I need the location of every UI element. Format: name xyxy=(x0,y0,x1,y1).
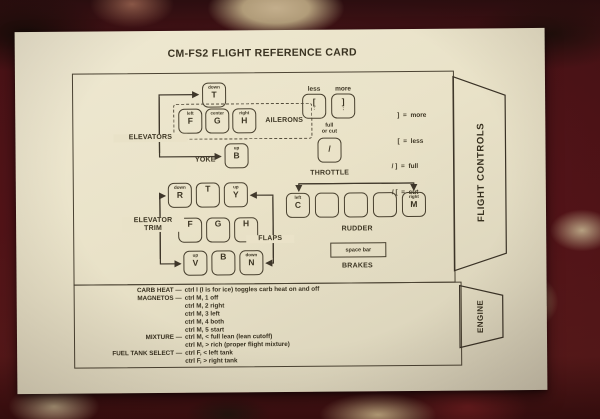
key-H-aileron-right: right H xyxy=(232,108,256,133)
engine-row-text: ctrl F, > right tank xyxy=(185,358,237,366)
key-Y-flaps-up: up Y xyxy=(224,182,248,207)
photo-of-reference-card: { "title": "CM-FS2 FLIGHT REFERENCE CARD… xyxy=(0,0,600,419)
engine-instructions: CARB HEAT — ctrl I (I is for ice) toggle… xyxy=(74,285,461,367)
engine-row-text: ctrl M, > rich (proper flight mixture) xyxy=(185,341,290,350)
key-M-rudder-right: right M xyxy=(402,192,426,217)
key-letter: V xyxy=(193,259,199,268)
key-blank-rudder xyxy=(344,192,368,217)
key-letter: C xyxy=(295,201,301,210)
elevators-label: ELEVATORS xyxy=(113,134,187,142)
key-blank-rudder xyxy=(315,193,339,218)
key-letter: T xyxy=(205,185,210,194)
key-letter: / xyxy=(328,145,330,154)
key-T-trim: T xyxy=(196,182,220,207)
key-right-bracket-throttle-more: ] ; xyxy=(331,93,355,118)
key-N-flaps-down: down N xyxy=(239,250,263,275)
space-bar-key: space bar xyxy=(330,242,386,257)
key-letter: F xyxy=(188,117,193,126)
flight-controls-tab-outline xyxy=(453,76,507,270)
key-G-middle-row: G xyxy=(206,217,230,242)
key-V-trim-up: up V xyxy=(183,251,207,276)
key-letter: B xyxy=(220,252,226,261)
key-B-elevator-up: up B xyxy=(224,143,248,168)
rudder-arrow-right xyxy=(299,183,414,191)
engine-tab-outline xyxy=(460,285,503,347)
elevator-trim-label: ELEVATOR TRIM xyxy=(122,217,184,232)
key-letter: B xyxy=(233,151,239,160)
key-letter: G xyxy=(215,219,222,228)
key-letter: H xyxy=(243,219,249,228)
key-letter: M xyxy=(410,200,417,209)
flaps-label: FLAPS xyxy=(246,235,294,243)
engine-row-label xyxy=(74,358,182,367)
key-letter: R xyxy=(177,191,183,200)
elevator-trim-line2: TRIM xyxy=(122,224,184,232)
key-letter: N xyxy=(248,258,254,267)
key-sub-glyph: ; xyxy=(342,107,344,111)
key-letter: Y xyxy=(233,190,239,199)
key-T-elevator-down: down T xyxy=(202,82,226,107)
key-letter: T xyxy=(211,91,216,100)
key-sub-glyph: : xyxy=(313,107,315,111)
key-slash-throttle-full-cut: / xyxy=(317,138,341,163)
key-left-bracket-throttle-less: [ : xyxy=(302,94,326,119)
key-G-aileron-center: center G xyxy=(205,108,229,133)
key-R-trim-down: down R xyxy=(168,183,192,208)
flaps-arrow-down xyxy=(266,197,274,263)
key-blank-rudder xyxy=(373,192,397,217)
key-C-rudder-left: left C xyxy=(286,193,310,218)
engine-row-text: ctrl I (I is for ice) toggles carb heat … xyxy=(185,286,320,295)
reference-card: CM-FS2 FLIGHT REFERENCE CARD xyxy=(15,28,548,394)
key-B-bottom-row: B xyxy=(211,250,235,275)
key-letter: G xyxy=(214,116,221,125)
key-letter: F xyxy=(187,220,192,229)
key-F-aileron-left: left F xyxy=(178,109,202,134)
key-letter: H xyxy=(241,116,247,125)
